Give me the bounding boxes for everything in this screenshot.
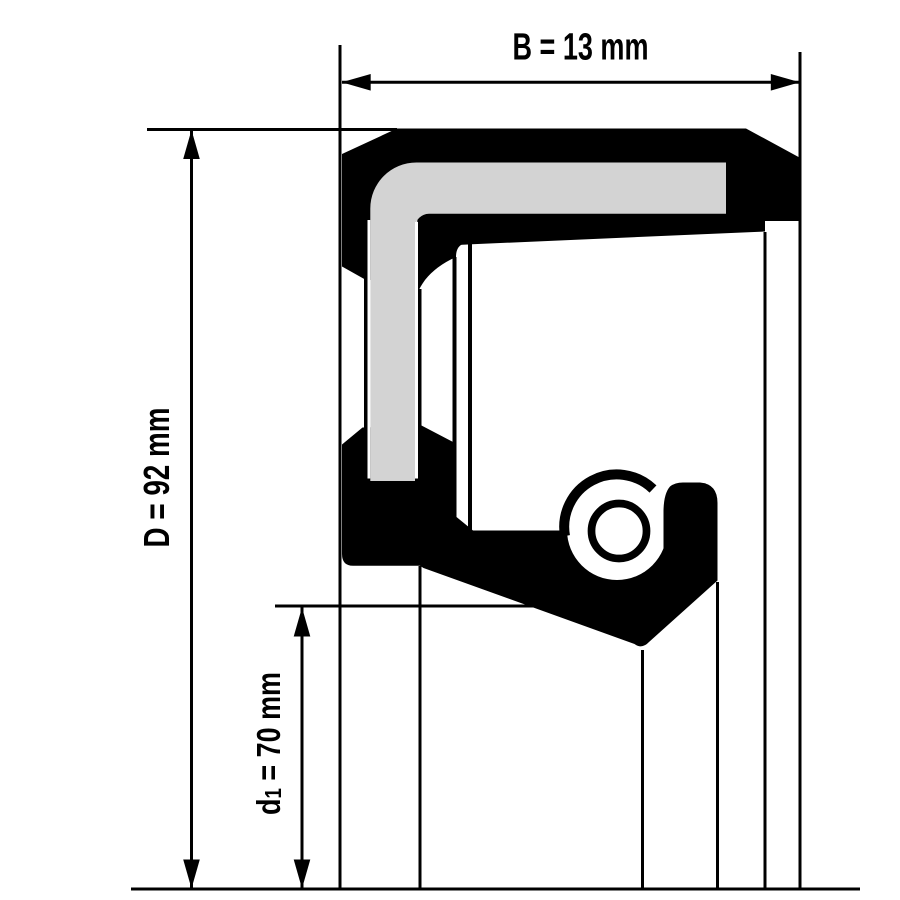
svg-text:B = 13 mm: B = 13 mm xyxy=(513,27,649,69)
svg-text:D = 92 mm: D = 92 mm xyxy=(136,408,177,548)
